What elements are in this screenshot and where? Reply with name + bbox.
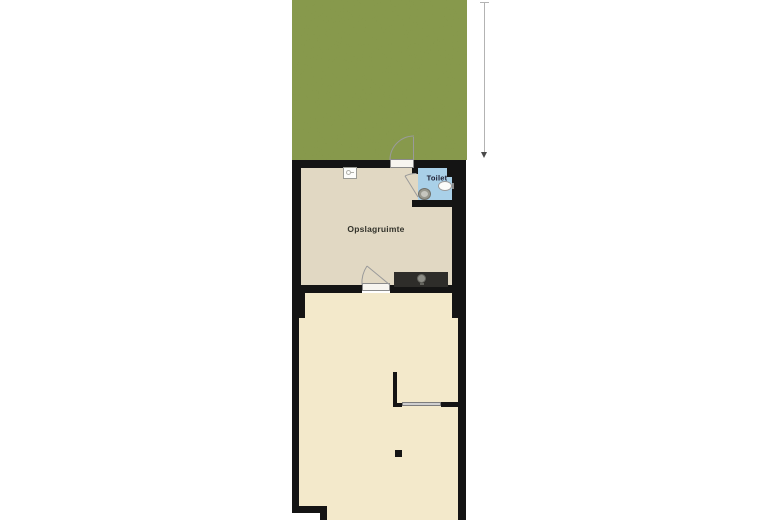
toilet-room-label: Toilet bbox=[427, 174, 448, 183]
wall-bottom-step bbox=[320, 513, 327, 520]
lamp-base-icon bbox=[420, 283, 424, 285]
sink-icon bbox=[438, 181, 452, 191]
storage-room-label: Opslagruimte bbox=[347, 224, 404, 234]
wall-top-left bbox=[292, 160, 390, 168]
wall-toilet-corner bbox=[447, 162, 460, 177]
floorplan-canvas: Opslagruimte Toilet bbox=[0, 0, 780, 520]
wall-left-pier bbox=[299, 293, 305, 318]
main-room-floor-upper bbox=[305, 293, 452, 318]
lamp-icon bbox=[417, 274, 426, 283]
wall-right-lower bbox=[458, 318, 466, 520]
wall-interior-stub-left bbox=[393, 403, 402, 407]
wall-left-storage bbox=[292, 160, 301, 293]
grass-texture bbox=[292, 0, 467, 160]
wall-toilet-stub bbox=[412, 168, 418, 174]
toilet-bowl-icon bbox=[418, 188, 431, 200]
main-room-floor bbox=[299, 318, 458, 507]
dimension-line bbox=[484, 2, 485, 153]
interior-opening-threshold bbox=[402, 402, 441, 406]
wall-bottom-left bbox=[292, 506, 327, 513]
wall-interior-stub-right bbox=[441, 402, 460, 407]
garden-area bbox=[292, 0, 467, 160]
wall-toilet-bottom bbox=[412, 200, 460, 207]
wall-interior-vertical bbox=[393, 372, 397, 407]
wall-left-main bbox=[292, 293, 299, 507]
boiler-unit-icon bbox=[343, 167, 357, 179]
dimension-arrow-icon bbox=[481, 152, 487, 158]
toilet-bowl-seat-icon bbox=[421, 191, 428, 197]
main-room-floor-lower bbox=[327, 507, 458, 520]
garden-door-leaf bbox=[390, 159, 414, 168]
storage-door-leaf bbox=[362, 283, 390, 291]
wall-mid-left bbox=[292, 285, 362, 293]
boiler-vent-icon bbox=[351, 172, 354, 173]
column bbox=[395, 450, 402, 457]
wall-right-upper bbox=[452, 160, 466, 318]
tap-icon bbox=[452, 183, 454, 189]
